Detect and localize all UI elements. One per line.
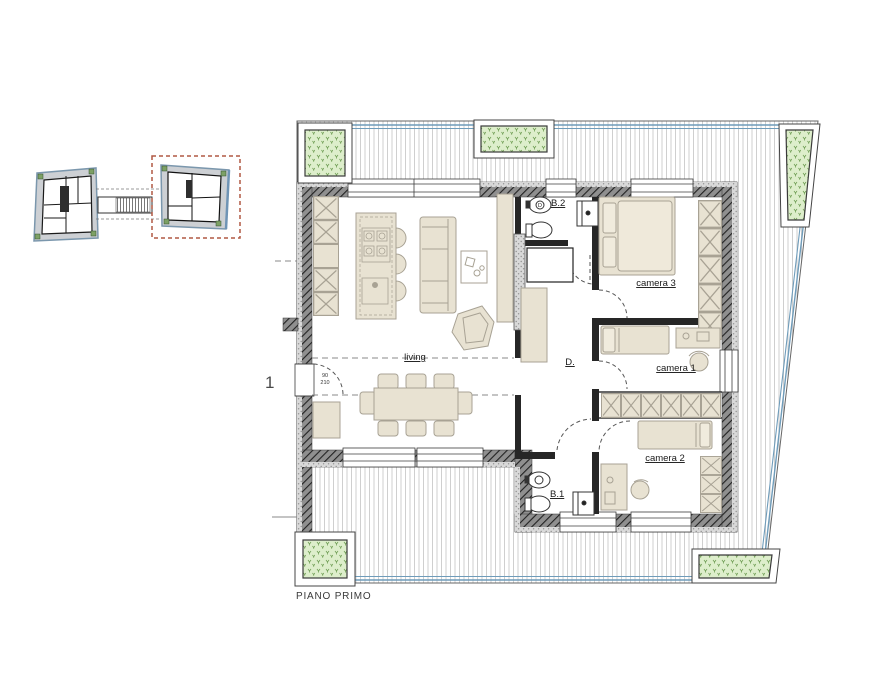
kitchen-tall-units (314, 197, 339, 316)
planter-top-right (779, 124, 820, 227)
desk-chair (631, 481, 649, 499)
entrance-door-gap (295, 364, 314, 396)
label-bedroom2: camera 2 (645, 453, 685, 464)
label-bath2: B.2 (551, 198, 565, 209)
label-bath1: B.1 (550, 489, 564, 500)
window-bedroom3-top (631, 179, 693, 197)
planter-bottom-right (692, 549, 780, 583)
bar-stools (396, 228, 406, 301)
window-living-bottom-left (343, 448, 415, 467)
door-height: 210 (320, 380, 329, 386)
window-living-top (348, 179, 480, 197)
label-bedroom1: camera 1 (656, 363, 696, 374)
sofa (420, 217, 456, 313)
door-width: 90 (322, 373, 328, 379)
key-plan-highlighted-block (152, 156, 240, 238)
entry-cabinet (313, 402, 340, 438)
planter-top-center (474, 120, 554, 158)
window-living-bottom-right (417, 448, 483, 467)
planter-top-left (298, 123, 352, 183)
label-bedroom3: camera 3 (636, 278, 676, 289)
desk (676, 328, 720, 348)
unit-number: 1 (265, 373, 274, 392)
label-living: living (404, 352, 426, 363)
toilet (530, 222, 552, 238)
bedroom3-furniture (599, 197, 675, 275)
tv-wall-cabinet (497, 194, 513, 322)
key-plan-connector (96, 189, 160, 219)
floor-plan-page: living D. B.2 B.1 camera 3 camera 1 came… (0, 0, 895, 687)
washbasin-symbol: D (538, 203, 542, 209)
wall-stub (283, 318, 298, 331)
planter-bottom-left (295, 532, 355, 586)
bedroom3-wardrobe (699, 201, 722, 340)
corridor-cabinet (521, 288, 547, 362)
bedroom2-wardrobe (701, 456, 722, 512)
window-bedroom1-right (720, 350, 738, 392)
key-plan-left-block (34, 168, 98, 241)
dining-table (374, 388, 458, 420)
kitchen-island (356, 213, 396, 319)
floor-title: PIANO PRIMO (296, 591, 371, 602)
corridor-closet (527, 248, 573, 282)
wardrobe-row (602, 394, 721, 418)
label-corridor: D. (565, 357, 575, 368)
floor-plan-drawing: living D. B.2 B.1 camera 3 camera 1 came… (0, 0, 895, 687)
window-corridor-top (546, 179, 576, 197)
key-plan (34, 156, 240, 241)
window-bedroom2-bottom (631, 512, 691, 532)
